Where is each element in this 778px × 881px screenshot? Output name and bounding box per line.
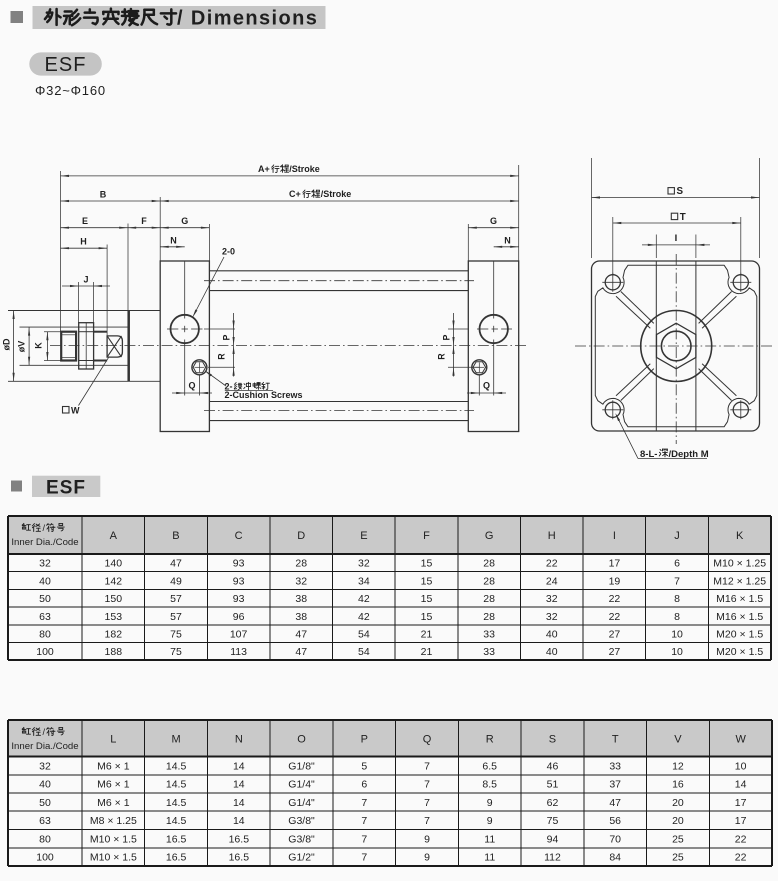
svg-text:M10 × 1.25: M10 × 1.25: [713, 558, 766, 570]
svg-text:9: 9: [424, 852, 430, 864]
svg-text:150: 150: [105, 593, 123, 605]
svg-text:96: 96: [233, 611, 245, 623]
svg-text:G1/4": G1/4": [288, 779, 315, 791]
svg-text:5: 5: [361, 760, 367, 772]
svg-text:40: 40: [546, 628, 558, 640]
svg-text:37: 37: [609, 779, 621, 791]
svg-text:16: 16: [672, 779, 684, 791]
svg-text:38: 38: [295, 593, 307, 605]
svg-text:32: 32: [39, 558, 51, 570]
svg-text:M20 × 1.5: M20 × 1.5: [716, 628, 763, 640]
svg-text:33: 33: [483, 646, 495, 658]
svg-text:93: 93: [233, 575, 245, 587]
svg-text:32: 32: [546, 593, 558, 605]
svg-text:16.5: 16.5: [166, 852, 187, 864]
svg-text:Q: Q: [188, 381, 195, 391]
svg-text:C+: C+: [289, 189, 301, 199]
svg-text:20: 20: [672, 797, 684, 809]
svg-text:84: 84: [609, 852, 621, 864]
svg-text:140: 140: [105, 558, 123, 570]
svg-text:16.5: 16.5: [166, 833, 187, 845]
svg-text:14: 14: [233, 815, 245, 827]
svg-text:9: 9: [487, 797, 493, 809]
svg-text:9: 9: [487, 815, 493, 827]
svg-text:øV: øV: [17, 341, 27, 353]
svg-text:E: E: [82, 216, 88, 226]
svg-text:27: 27: [609, 628, 621, 640]
svg-text:80: 80: [39, 833, 51, 845]
svg-text:14.5: 14.5: [166, 797, 187, 809]
svg-text:7: 7: [361, 852, 367, 864]
svg-text:2-0: 2-0: [222, 247, 235, 257]
svg-text:17: 17: [609, 558, 621, 570]
svg-text:11: 11: [484, 852, 495, 864]
svg-text:R: R: [437, 353, 447, 360]
svg-text:J: J: [674, 530, 680, 542]
svg-text:M8 × 1.25: M8 × 1.25: [90, 815, 137, 827]
svg-text:8-L-: 8-L-: [640, 449, 657, 460]
svg-text:107: 107: [230, 628, 248, 640]
svg-text:2-Cushion Screws: 2-Cushion Screws: [225, 390, 303, 400]
svg-text:33: 33: [609, 760, 621, 772]
svg-text:8: 8: [674, 593, 680, 605]
svg-text:Φ32~Φ160: Φ32~Φ160: [35, 83, 106, 98]
svg-text:M16 × 1.5: M16 × 1.5: [716, 611, 763, 623]
svg-text:I: I: [613, 530, 616, 542]
svg-text:W: W: [735, 733, 746, 745]
svg-text:25: 25: [672, 833, 684, 845]
svg-text:54: 54: [358, 628, 370, 640]
svg-text:80: 80: [39, 628, 51, 640]
svg-text:W: W: [71, 406, 80, 416]
svg-text:V: V: [674, 733, 682, 745]
svg-text:75: 75: [547, 815, 559, 827]
svg-text:F: F: [141, 216, 147, 226]
svg-text:P: P: [222, 334, 232, 340]
svg-text:14.5: 14.5: [166, 779, 187, 791]
svg-text:/ Dimensions: / Dimensions: [177, 8, 318, 30]
svg-text:100: 100: [36, 646, 54, 658]
svg-text:22: 22: [546, 558, 558, 570]
svg-text:20: 20: [672, 815, 684, 827]
svg-text:/Stroke: /Stroke: [289, 164, 320, 174]
svg-text:93: 93: [233, 558, 245, 570]
svg-text:22: 22: [735, 833, 747, 845]
svg-text:113: 113: [230, 646, 247, 658]
svg-text:15: 15: [421, 593, 433, 605]
svg-text:7: 7: [361, 833, 367, 845]
svg-text:G: G: [485, 530, 494, 542]
svg-text:14: 14: [735, 779, 747, 791]
svg-text:P: P: [441, 334, 451, 340]
svg-text:M20 × 1.5: M20 × 1.5: [716, 646, 763, 658]
svg-text:6: 6: [361, 779, 367, 791]
svg-text:M6 × 1: M6 × 1: [97, 760, 130, 772]
svg-text:100: 100: [36, 852, 54, 864]
svg-text:10: 10: [671, 628, 683, 640]
svg-text:7: 7: [424, 760, 430, 772]
svg-text:40: 40: [39, 779, 51, 791]
svg-text:6: 6: [674, 558, 680, 570]
svg-text:57: 57: [170, 593, 182, 605]
svg-text:50: 50: [39, 797, 51, 809]
svg-text:/Stroke: /Stroke: [321, 189, 352, 199]
svg-text:Q: Q: [483, 381, 490, 391]
svg-text:46: 46: [547, 760, 559, 772]
svg-text:H: H: [548, 530, 556, 542]
svg-text:32: 32: [39, 760, 51, 772]
svg-text:10: 10: [671, 646, 683, 658]
svg-text:51: 51: [547, 779, 559, 791]
svg-text:7: 7: [424, 815, 430, 827]
svg-text:10: 10: [735, 760, 747, 772]
svg-text:6.5: 6.5: [482, 760, 497, 772]
svg-text:G1/8": G1/8": [288, 760, 315, 772]
svg-text:7: 7: [674, 575, 680, 587]
svg-text:63: 63: [39, 611, 51, 623]
svg-text:F: F: [423, 530, 430, 542]
svg-text:142: 142: [105, 575, 123, 587]
svg-text:M: M: [172, 733, 181, 745]
svg-text:T: T: [612, 733, 619, 745]
svg-text:G3/8": G3/8": [288, 833, 315, 845]
svg-text:ESF: ESF: [46, 477, 86, 498]
svg-text:R: R: [486, 733, 494, 745]
svg-text:Inner Dia./Code: Inner Dia./Code: [11, 537, 78, 548]
svg-text:49: 49: [170, 575, 182, 587]
svg-text:G1/4": G1/4": [288, 797, 315, 809]
svg-text:M6 × 1: M6 × 1: [97, 779, 130, 791]
svg-text:C: C: [235, 530, 243, 542]
svg-text:56: 56: [609, 815, 621, 827]
svg-text:22: 22: [735, 852, 747, 864]
svg-text:K: K: [736, 530, 744, 542]
svg-text:33: 33: [483, 628, 495, 640]
svg-text:27: 27: [609, 646, 621, 658]
svg-text:112: 112: [544, 852, 561, 864]
svg-text:28: 28: [295, 558, 307, 570]
svg-text:32: 32: [358, 558, 370, 570]
svg-text:9: 9: [424, 833, 430, 845]
svg-text:8: 8: [674, 611, 680, 623]
svg-text:/: /: [43, 523, 46, 533]
svg-text:47: 47: [295, 646, 307, 658]
svg-text:70: 70: [609, 833, 621, 845]
svg-text:14: 14: [233, 779, 245, 791]
svg-text:40: 40: [546, 646, 558, 658]
svg-text:75: 75: [170, 628, 182, 640]
svg-text:50: 50: [39, 593, 51, 605]
svg-text:15: 15: [421, 575, 433, 587]
svg-text:7: 7: [361, 797, 367, 809]
svg-text:57: 57: [170, 611, 182, 623]
svg-text:21: 21: [421, 628, 433, 640]
svg-text:42: 42: [358, 611, 370, 623]
svg-text:N: N: [235, 733, 243, 745]
svg-text:øD: øD: [1, 338, 11, 350]
svg-text:M10 × 1.5: M10 × 1.5: [90, 833, 137, 845]
svg-text:ESF: ESF: [45, 54, 87, 76]
svg-text:R: R: [217, 353, 227, 360]
svg-text:94: 94: [547, 833, 559, 845]
svg-text:28: 28: [483, 611, 495, 623]
svg-text:28: 28: [483, 575, 495, 587]
svg-text:75: 75: [170, 646, 182, 658]
svg-text:L: L: [110, 733, 116, 745]
svg-text:S: S: [549, 733, 556, 745]
svg-text:25: 25: [672, 852, 684, 864]
svg-text:16.5: 16.5: [229, 852, 250, 864]
svg-text:B: B: [100, 190, 107, 200]
svg-text:32: 32: [295, 575, 307, 587]
svg-text:G: G: [490, 216, 497, 226]
svg-text:G1/2": G1/2": [288, 852, 315, 864]
svg-text:K: K: [34, 342, 44, 349]
svg-text:14.5: 14.5: [166, 815, 187, 827]
svg-text:182: 182: [105, 628, 123, 640]
svg-text:O: O: [297, 733, 306, 745]
svg-text:34: 34: [358, 575, 370, 587]
svg-text:/Depth M: /Depth M: [669, 449, 709, 460]
svg-text:M16 × 1.5: M16 × 1.5: [716, 593, 763, 605]
svg-text:42: 42: [358, 593, 370, 605]
svg-text:M12 × 1.25: M12 × 1.25: [713, 575, 766, 587]
svg-text:T: T: [680, 212, 686, 223]
svg-text:19: 19: [609, 575, 621, 587]
svg-text:M6 × 1: M6 × 1: [97, 797, 130, 809]
svg-text:38: 38: [295, 611, 307, 623]
svg-text:I: I: [675, 233, 678, 244]
svg-text:A: A: [110, 530, 118, 542]
svg-text:11: 11: [484, 833, 495, 845]
svg-text:N: N: [170, 235, 177, 245]
svg-text:188: 188: [105, 646, 123, 658]
svg-text:40: 40: [39, 575, 51, 587]
svg-text:G: G: [181, 216, 188, 226]
svg-text:7: 7: [424, 779, 430, 791]
svg-text:47: 47: [295, 628, 307, 640]
svg-text:7: 7: [361, 815, 367, 827]
svg-text:15: 15: [421, 611, 433, 623]
svg-text:8.5: 8.5: [482, 779, 497, 791]
svg-text:12: 12: [672, 760, 684, 772]
svg-text:14.5: 14.5: [166, 760, 187, 772]
svg-text:21: 21: [421, 646, 433, 658]
svg-text:28: 28: [483, 558, 495, 570]
svg-text:14: 14: [233, 797, 245, 809]
svg-text:J: J: [83, 275, 88, 285]
svg-text:Inner Dia./Code: Inner Dia./Code: [11, 741, 78, 752]
svg-text:153: 153: [105, 611, 123, 623]
svg-text:22: 22: [609, 611, 621, 623]
svg-text:E: E: [360, 530, 367, 542]
svg-text:17: 17: [735, 797, 747, 809]
svg-text:/: /: [43, 727, 46, 737]
svg-text:47: 47: [170, 558, 182, 570]
svg-text:16.5: 16.5: [229, 833, 250, 845]
svg-text:24: 24: [546, 575, 558, 587]
svg-text:28: 28: [483, 593, 495, 605]
svg-text:M10 × 1.5: M10 × 1.5: [90, 852, 137, 864]
svg-text:32: 32: [546, 611, 558, 623]
svg-text:G3/8": G3/8": [288, 815, 315, 827]
svg-text:17: 17: [735, 815, 747, 827]
svg-text:62: 62: [547, 797, 559, 809]
svg-text:P: P: [361, 733, 368, 745]
svg-text:D: D: [297, 530, 305, 542]
svg-text:7: 7: [424, 797, 430, 809]
svg-text:14: 14: [233, 760, 245, 772]
svg-text:A+: A+: [258, 164, 270, 174]
svg-text:S: S: [677, 186, 684, 197]
svg-text:93: 93: [233, 593, 245, 605]
svg-text:47: 47: [609, 797, 621, 809]
svg-text:63: 63: [39, 815, 51, 827]
svg-text:B: B: [172, 530, 179, 542]
svg-text:22: 22: [609, 593, 621, 605]
svg-text:54: 54: [358, 646, 370, 658]
svg-text:H: H: [80, 237, 87, 247]
svg-text:N: N: [504, 235, 511, 245]
svg-text:15: 15: [421, 558, 433, 570]
svg-text:Q: Q: [423, 733, 432, 745]
